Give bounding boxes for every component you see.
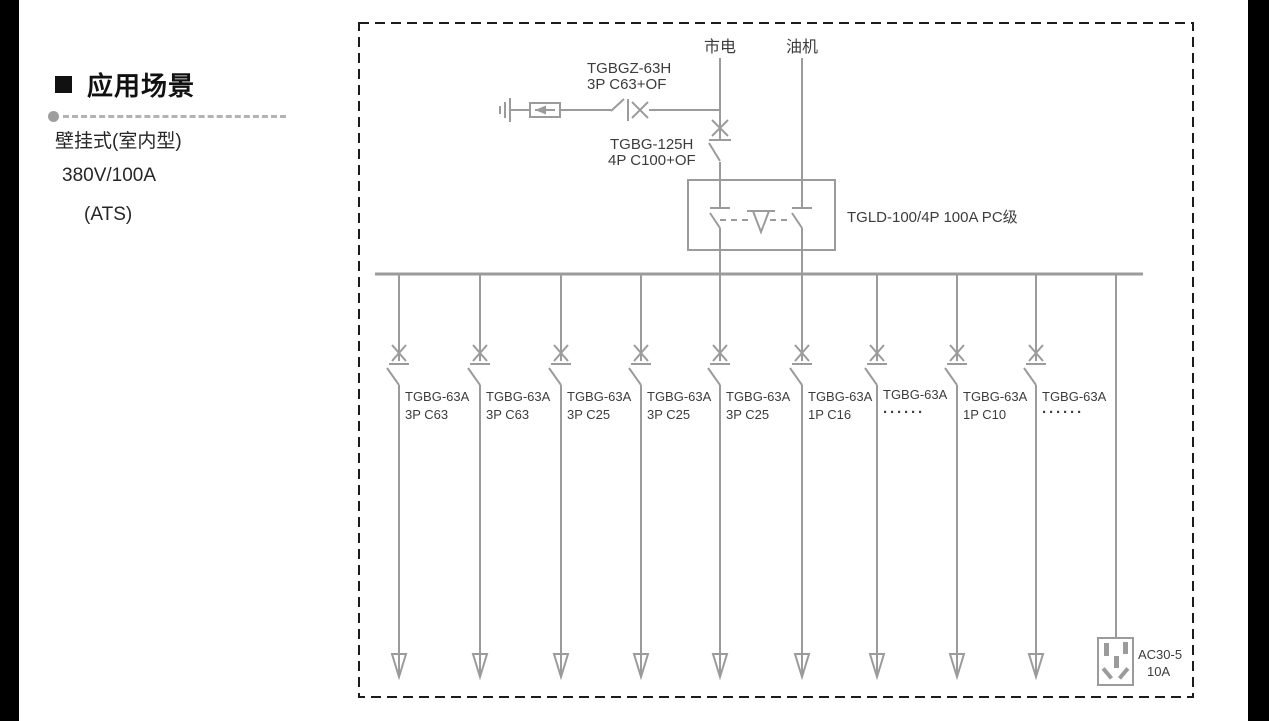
separator-dashes — [63, 115, 286, 118]
mains-source-label: 市电 — [704, 38, 736, 56]
branch-model: TGBG-63A — [647, 389, 712, 404]
branch-model: TGBG-63A — [963, 389, 1028, 404]
product-spec-rating: 380V/100A — [62, 165, 156, 187]
section-heading: 应用场景 — [55, 66, 195, 103]
branch-spec: 3P C25 — [726, 407, 769, 422]
feeder-branches — [387, 274, 1046, 677]
breaker-x-icon — [632, 102, 648, 118]
socket-branch — [1098, 274, 1133, 685]
main-breaker-spec: 4P C100+OF — [608, 152, 696, 169]
branch-spec: 1P C16 — [808, 407, 851, 422]
product-spec-type: (ATS) — [84, 204, 132, 226]
ats-label: TGLD-100/4P 100A PC级 — [847, 209, 1018, 226]
branch-model: TGBG-63A — [1042, 389, 1107, 404]
feeder-breaker-symbol — [790, 274, 812, 677]
feeder-breaker-symbol — [629, 274, 651, 677]
socket-slot — [1118, 667, 1129, 680]
branch-spec: ······ — [883, 404, 925, 421]
ats-box — [688, 180, 835, 250]
branch-spec: 1P C10 — [963, 407, 1006, 422]
product-spec-mounting: 壁挂式(室内型) — [55, 126, 182, 153]
socket-slot — [1114, 656, 1119, 668]
branch-spec: 3P C63 — [486, 407, 529, 422]
separator-dot-icon — [48, 111, 59, 122]
branch-spec: 3P C25 — [647, 407, 690, 422]
feeder-breaker-symbol — [865, 274, 887, 677]
feeder-breaker-symbol — [708, 274, 730, 677]
branch-model: TGBG-63A — [405, 389, 470, 404]
socket-rating: 10A — [1147, 664, 1170, 679]
branch-model: TGBG-63A — [808, 389, 873, 404]
ats-switch — [688, 180, 835, 274]
single-line-diagram: 市电 油机 TGBGZ-63H 3P C63+OF — [358, 22, 1194, 698]
spd-branch — [500, 98, 720, 122]
branch-spec: ······ — [1042, 404, 1084, 421]
branch-spec: 3P C25 — [567, 407, 610, 422]
branch-model: TGBG-63A — [726, 389, 791, 404]
main-breaker-model: TGBG-125H — [610, 136, 693, 153]
generator-source-label: 油机 — [786, 38, 818, 56]
socket-slot — [1123, 642, 1128, 654]
branch-spec: 3P C63 — [405, 407, 448, 422]
left-crop-bar — [0, 0, 19, 721]
spd-breaker-spec: 3P C63+OF — [587, 76, 666, 93]
spd-breaker-model: TGBGZ-63H — [587, 60, 671, 77]
section-heading-text: 应用场景 — [87, 66, 195, 103]
dashed-separator — [48, 111, 286, 122]
socket-slot — [1102, 667, 1113, 680]
branch-model: TGBG-63A — [883, 387, 948, 402]
arrester-arrow-icon — [535, 106, 546, 115]
branch-model: TGBG-63A — [486, 389, 551, 404]
feeder-breaker-symbol — [468, 274, 490, 677]
feeder-breaker-symbol — [945, 274, 967, 677]
feeder-breaker-symbol — [1024, 274, 1046, 677]
ats-mechanism-icon — [753, 211, 769, 232]
feeder-breaker-symbol — [387, 274, 409, 677]
feeder-breaker-symbol — [549, 274, 571, 677]
square-bullet-icon — [55, 76, 72, 93]
socket-slot — [1104, 643, 1109, 656]
diagram-dashed-border — [359, 23, 1193, 697]
incoming-lines — [720, 58, 802, 208]
ground-symbol-icon — [500, 98, 510, 122]
page: 应用场景 壁挂式(室内型) 380V/100A (ATS) 市电 油机 — [0, 0, 1269, 721]
branch-model: TGBG-63A — [567, 389, 632, 404]
right-crop-bar — [1248, 0, 1269, 721]
socket-model: AC30-5 — [1138, 647, 1182, 662]
